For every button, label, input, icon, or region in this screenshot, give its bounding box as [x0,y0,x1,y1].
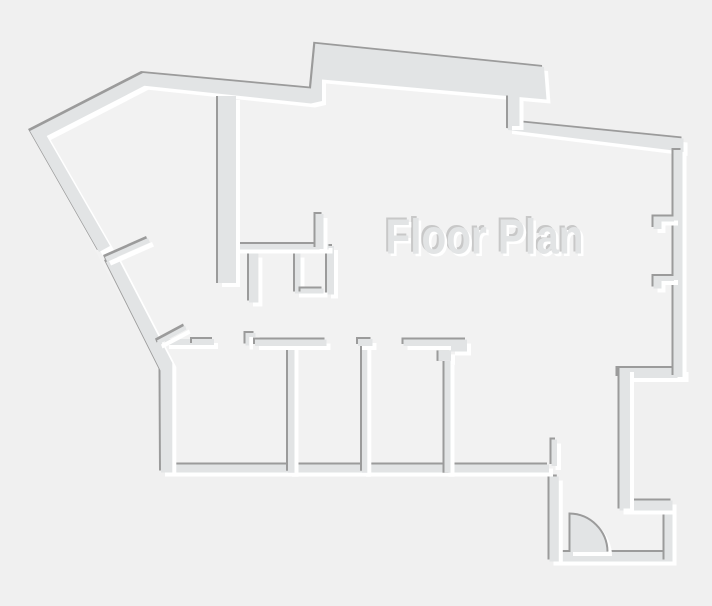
svg-text:Floor Plan: Floor Plan [386,211,584,265]
